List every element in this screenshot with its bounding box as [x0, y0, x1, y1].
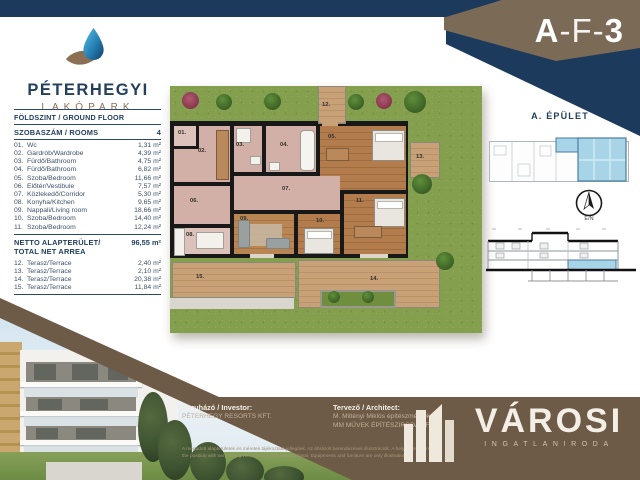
row-name: Terasz/Terrace: [27, 284, 135, 292]
bathtub: [300, 130, 315, 171]
row-name: Terasz/Terrace: [27, 260, 138, 268]
terrace-15: [172, 262, 296, 298]
plant: [362, 291, 374, 303]
unit-sep2: -: [593, 12, 605, 49]
disclaimer: A megadott alapterületek és méretek tájé…: [182, 447, 612, 460]
photo-window: [34, 364, 56, 380]
row-area: 18,66 m²: [134, 207, 161, 215]
desk-11: [354, 226, 382, 238]
terrace-row: 13.Terasz/Terrace2,10 m²: [14, 268, 161, 276]
door-entrance: [322, 121, 338, 126]
walkway: [170, 298, 294, 309]
rule: [14, 294, 161, 295]
plan-label-04: 04.: [280, 142, 288, 148]
area-unit: m²: [153, 284, 161, 291]
row-name: Szoba/Bedroom: [27, 215, 134, 223]
door-terrace-14: [360, 254, 388, 258]
plant: [264, 93, 281, 110]
plan-label-07: 07.: [282, 186, 290, 192]
plan-label-06: 06.: [190, 198, 198, 204]
row-area: 9,65 m²: [138, 199, 161, 207]
rooms-label: SZOBASZÁM / ROOMS: [14, 128, 98, 137]
area-value: 5,30: [138, 191, 151, 198]
area-unit: m²: [153, 150, 161, 157]
row-area: 2,40 m²: [138, 260, 161, 268]
row-area: 1,31 m²: [138, 142, 161, 150]
plan-label-03: 03.: [236, 142, 244, 148]
area-value: 18,66: [134, 207, 151, 214]
kitchen-counter: [174, 228, 185, 256]
area-unit: m²: [153, 142, 161, 149]
row-num: 10.: [14, 215, 27, 223]
plan-label-01: 01.: [178, 130, 186, 136]
row-num: 11.: [14, 224, 27, 232]
wardrobe-cabinet: [216, 130, 229, 180]
shower: [236, 128, 251, 143]
investor-name: PÉTERHEGY RESORTS KFT.: [182, 412, 272, 421]
room-rows: 01.Wc1,31 m² 02.Gardrób/Wardrobe4,39 m² …: [14, 140, 161, 234]
area-value: 9,65: [138, 199, 151, 206]
area-value: 11,66: [135, 175, 152, 182]
plan-label-02: 02.: [198, 148, 206, 154]
plant: [328, 291, 340, 303]
row-name: Nappali/Living room: [27, 207, 134, 215]
plant: [216, 94, 232, 110]
terrace-rows: 12.Terasz/Terrace2,40 m² 13.Terasz/Terra…: [14, 258, 161, 295]
net-value: 96,55 m²: [131, 238, 161, 256]
row-area: 11,84 m²: [135, 284, 161, 292]
row-num: 12.: [14, 260, 27, 268]
row-name: Terasz/Terrace: [27, 268, 138, 276]
waterdrop-logo-icon: [60, 26, 116, 72]
row-num: 07.: [14, 191, 27, 199]
room-row: 06.Előtér/Vestibule7,57 m²: [14, 183, 161, 191]
row-num: 06.: [14, 183, 27, 191]
floor-title: FÖLDSZINT / GROUND FLOOR: [14, 110, 161, 124]
net-area-header: NETTO ALAPTERÜLET/TOTAL NET ARREA 96,55 …: [14, 235, 161, 258]
plan-label-11: 11.: [356, 198, 364, 204]
row-area: 5,30 m²: [138, 191, 161, 199]
varosi-name: VÁROSI: [466, 404, 632, 438]
disclaimer-en: the position with vary. The given data a…: [182, 454, 612, 461]
area-value: 11,84: [135, 284, 152, 291]
photo-window: [76, 428, 106, 439]
row-name: Szoba/Bedroom: [27, 175, 135, 183]
investor-block: Beruházó / Investor: PÉTERHEGY RESORTS K…: [182, 403, 272, 421]
row-area: 2,10 m²: [138, 268, 161, 276]
room-row: 10.Szoba/Bedroom14,40 m²: [14, 215, 161, 223]
row-area: 14,40 m²: [134, 215, 161, 223]
row-name: Gardrób/Wardrobe: [27, 150, 138, 158]
row-area: 20,38 m²: [134, 276, 161, 284]
terrace-row: 15.Terasz/Terrace11,84 m²: [14, 284, 161, 292]
plant: [404, 91, 426, 113]
row-name: Szoba/Bedroom: [27, 224, 134, 232]
area-unit: m²: [153, 207, 161, 214]
plan-label-09: 09.: [240, 216, 248, 222]
room-row: 04.Fürdő/Bathroom6,82 m²: [14, 166, 161, 174]
row-num: 05.: [14, 175, 27, 183]
room-corridor: [234, 176, 340, 210]
plant: [412, 174, 432, 194]
row-num: 08.: [14, 199, 27, 207]
sink: [250, 156, 261, 165]
photo-path: [46, 462, 142, 480]
room-row: 09.Nappali/Living room18,66 m²: [14, 207, 161, 215]
plan-label-08: 08.: [186, 232, 194, 238]
photo-window: [38, 399, 62, 410]
row-num: 02.: [14, 150, 27, 158]
photo-window: [36, 428, 58, 439]
bed-10: [304, 228, 334, 254]
area-value: 14,40: [134, 215, 151, 222]
room-row: 11.Szoba/Bedroom12,24 m²: [14, 224, 161, 232]
area-unit: m²: [153, 276, 161, 283]
area-unit: m²: [153, 199, 161, 206]
area-unit: m²: [153, 175, 161, 182]
area-unit: m²: [153, 268, 161, 275]
row-num: 15.: [14, 284, 27, 292]
room-row: 02.Gardrób/Wardrobe4,39 m²: [14, 150, 161, 158]
door-terrace-15: [250, 254, 274, 258]
area-value: 4,75: [138, 158, 151, 165]
area-value: 20,38: [134, 276, 151, 283]
flower-bush: [376, 93, 392, 109]
varosi-wordmark: VÁROSI INGATLANIRODA: [466, 404, 632, 448]
varosi-logo: [402, 398, 458, 473]
area-unit: m²: [153, 191, 161, 198]
brand-logo: PÉTERHEGYI LAKÓPARK: [14, 26, 162, 113]
row-name: Konyha/Kitchen: [27, 199, 138, 207]
photo-window: [80, 399, 108, 410]
room-row: 08.Konyha/Kitchen9,65 m²: [14, 199, 161, 207]
plan-label-13: 13.: [416, 154, 424, 160]
row-name: Közlekedő/Corridor: [27, 191, 138, 199]
brochure-page: A-F-3 PÉTERHEGYI LAKÓPARK FÖLDSZINT / GR…: [0, 0, 640, 480]
sofa-1: [238, 220, 250, 248]
plan-label-05: 05.: [328, 134, 336, 140]
area-value: 4,39: [138, 150, 151, 157]
compass-icon: [574, 188, 604, 218]
area-table: FÖLDSZINT / GROUND FLOOR SZOBASZÁM / ROO…: [14, 109, 161, 295]
terrace-row: 12.Terasz/Terrace2,40 m²: [14, 260, 161, 268]
net-label-1: NETTO ALAPTERÜLET/: [14, 238, 101, 247]
plan-label-15: 15.: [196, 274, 204, 280]
row-num: 13.: [14, 268, 27, 276]
rooms-count-row: SZOBASZÁM / ROOMS 4: [14, 125, 161, 140]
plan-label-12: 12.: [322, 102, 330, 108]
key-plan: [488, 134, 632, 190]
area-value: 2,10: [138, 268, 151, 275]
row-name: Előtér/Vestibule: [27, 183, 138, 191]
row-num: 03.: [14, 158, 27, 166]
plant: [436, 252, 454, 270]
area-unit: m²: [153, 224, 161, 231]
row-name: Fürdő/Bathroom: [27, 158, 138, 166]
row-area: 4,75 m²: [138, 158, 161, 166]
terrace-row: 14.Terasz/Terrace20,38 m²: [14, 276, 161, 284]
desk-05: [326, 148, 349, 161]
row-num: 09.: [14, 207, 27, 215]
investor-label: Beruházó / Investor:: [182, 403, 272, 412]
area-unit: m²: [153, 183, 161, 190]
brand-name: PÉTERHEGYI: [14, 81, 162, 100]
area-unit: m²: [153, 158, 161, 165]
bed-05: [372, 130, 405, 161]
row-area: 7,57 m²: [138, 183, 161, 191]
building-section: [484, 226, 638, 288]
varosi-building-icon: [402, 398, 458, 468]
row-area: 12,24 m²: [134, 224, 161, 232]
unit-num: 3: [605, 12, 624, 49]
row-name: Fürdő/Bathroom: [27, 166, 138, 174]
area-value: 6,82: [138, 166, 151, 173]
area-unit: m²: [153, 260, 161, 267]
varosi-tagline: INGATLANIRODA: [466, 441, 632, 448]
unit-building: A: [535, 12, 560, 49]
plan-label-10: 10.: [316, 218, 324, 224]
area-unit: m²: [153, 215, 161, 222]
row-name: Terasz/Terrace: [27, 276, 134, 284]
compass-label: É/N: [574, 216, 604, 222]
area-unit: m²: [153, 166, 161, 173]
toilet: [269, 162, 280, 171]
sofa-2: [266, 238, 290, 249]
row-area: 11,66 m²: [135, 175, 161, 183]
building-title: A. ÉPÜLET: [490, 111, 630, 121]
bed-11: [374, 198, 405, 227]
row-num: 14.: [14, 276, 27, 284]
area-value: 12,24: [134, 224, 151, 231]
room-row: 01.Wc1,31 m²: [14, 142, 161, 150]
unit-code: A-F-3: [535, 12, 624, 50]
area-value: 7,57: [138, 183, 151, 190]
row-name: Wc: [27, 142, 138, 150]
plan-label-14: 14.: [370, 276, 378, 282]
row-num: 01.: [14, 142, 27, 150]
flower-bush: [182, 92, 199, 109]
room-vestibule: [174, 186, 230, 224]
rooms-count: 4: [157, 128, 161, 137]
unit-mid: F: [571, 12, 592, 49]
area-value: 1,31: [138, 142, 151, 149]
row-area: 4,39 m²: [138, 150, 161, 158]
row-area: 6,82 m²: [138, 166, 161, 174]
terrace-13: [410, 142, 440, 178]
room-row: 03.Fürdő/Bathroom4,75 m²: [14, 158, 161, 166]
unit-sep: -: [559, 12, 571, 49]
net-label-2: TOTAL NET ARREA: [14, 247, 101, 256]
row-num: 04.: [14, 166, 27, 174]
area-value: 2,40: [138, 260, 151, 267]
dining-table: [196, 232, 224, 249]
plant: [348, 94, 364, 110]
floor-plan: 01. 02. 03. 04. 05. 06. 07. 08. 09. 10. …: [170, 86, 482, 333]
room-row: 05.Szoba/Bedroom11,66 m²: [14, 175, 161, 183]
photo-window: [72, 364, 98, 380]
room-row: 07.Közlekedő/Corridor5,30 m²: [14, 191, 161, 199]
